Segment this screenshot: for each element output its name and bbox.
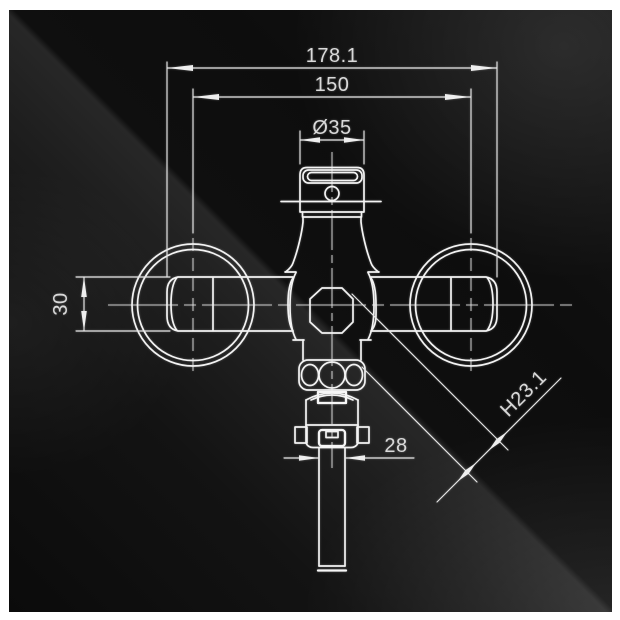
oblique-tick — [487, 430, 509, 452]
dim-label-cap-diameter: Ø35 — [312, 117, 351, 139]
right-handle-lever — [371, 277, 497, 331]
left-handle-lever — [167, 277, 293, 331]
dim-label-handle-height: 30 — [50, 292, 72, 315]
arrowhead — [299, 455, 319, 460]
dim-label-overall-width: 178.1 — [306, 45, 359, 67]
dim-label-diagonal-clearance: H23.1 — [496, 366, 551, 421]
dim-label-handle-centers: 150 — [315, 74, 350, 96]
faucet-technical-drawing: 178.1 150 Ø35 30 28 — [0, 0, 620, 620]
neck-left-edge — [286, 217, 304, 272]
arrowhead — [81, 277, 87, 297]
diagonal-extension-line-1 — [352, 294, 508, 450]
arrowhead — [345, 455, 365, 460]
diverter-left-ball — [302, 365, 319, 386]
dimension-diagonal-clearance: H23.1 — [352, 294, 561, 502]
arrowhead — [167, 65, 193, 71]
photo-frame: 178.1 150 Ø35 30 28 — [0, 0, 620, 620]
diagonal-extension-line-2 — [362, 367, 477, 482]
arrowhead — [81, 311, 87, 331]
diverter-right-ball — [346, 365, 363, 386]
dim-label-spout-width: 28 — [384, 435, 407, 457]
dimension-handle-height: 30 — [50, 277, 170, 331]
centerlines — [108, 152, 578, 468]
right-lever-tip-arc — [487, 278, 493, 331]
arrowhead — [445, 94, 471, 100]
arrowhead — [471, 65, 497, 71]
neck-right-edge — [361, 217, 379, 272]
left-lever-tip-arc — [171, 278, 177, 331]
cartridge-cap — [281, 168, 381, 218]
arrowhead — [193, 94, 219, 100]
